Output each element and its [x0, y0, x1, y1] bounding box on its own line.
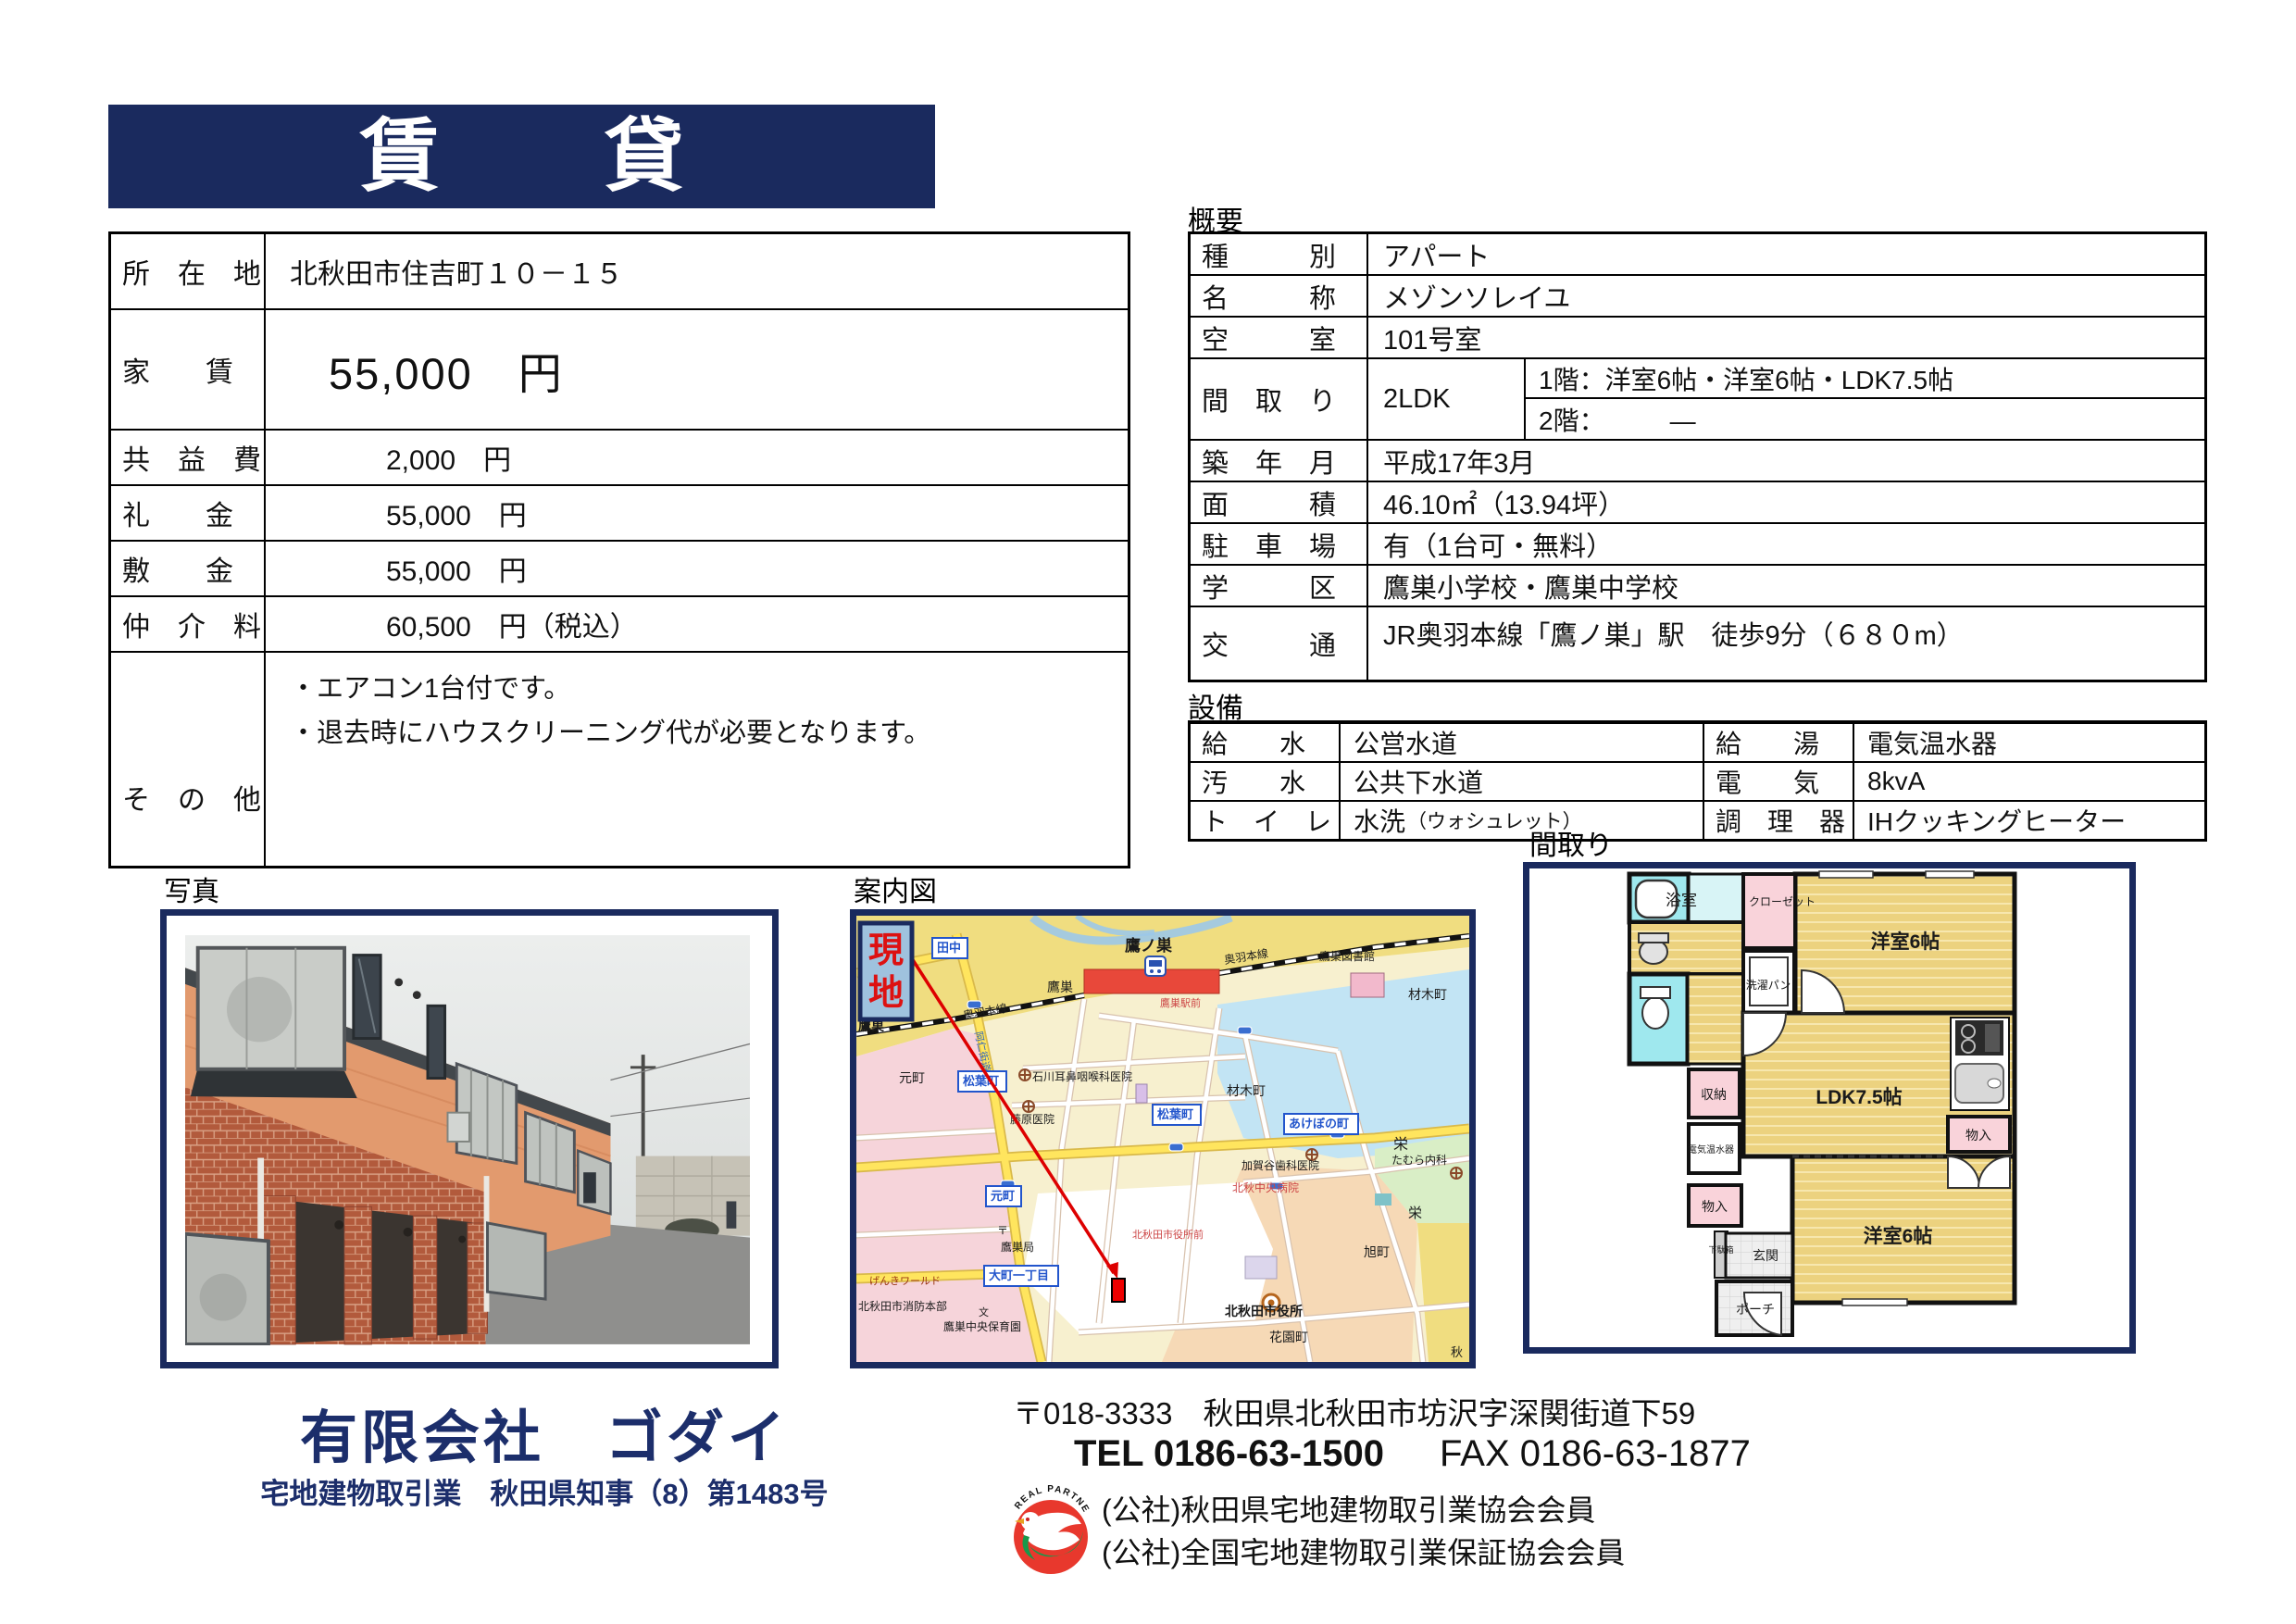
table-row-other: そ の 他 ・エアコン1台付です。 ・退去時にハウスクリーニング代が必要となりま… [111, 653, 1128, 866]
table-row-parking: 駐 車 場 有（1台可・無料） [1191, 524, 2204, 566]
row-label: 敷 金 [111, 542, 266, 595]
layout-floor2: 2階： ― [1526, 399, 2204, 439]
row-value: 2,000 円 [266, 431, 1128, 484]
row-value: ・エアコン1台付です。 ・退去時にハウスクリーニング代が必要となります。 [266, 653, 1128, 866]
area-map-image: 田中鷹ノ巣奥羽本線鷹巣図書館材木町鷹巣鷹巣駅前奥羽本線鷹巣阿仁街道元町松葉町石川… [856, 916, 1469, 1362]
svg-text:加賀谷歯科医院: 加賀谷歯科医院 [1242, 1159, 1319, 1172]
company-phone: TEL 0186-63-1500FAX 0186-63-1877 [1074, 1433, 1751, 1475]
svg-text:北秋田市消防本部: 北秋田市消防本部 [858, 1299, 947, 1313]
svg-text:洋室6帖: 洋室6帖 [1871, 931, 1940, 953]
svg-text:洗濯パン: 洗濯パン [1746, 979, 1791, 992]
svg-text:鷹巣駅前: 鷹巣駅前 [1160, 996, 1201, 1009]
svg-text:クローゼット: クローゼット [1749, 895, 1816, 908]
title-text: 賃 貸 [318, 117, 727, 196]
tel-number: TEL 0186-63-1500 [1074, 1433, 1384, 1474]
svg-text:北秋田市役所前: 北秋田市役所前 [1132, 1228, 1204, 1241]
row-value: 55,000 円 [266, 486, 1128, 540]
floorplan-image: 浴室クローゼット洋室6帖洗濯パンLDK7.5帖収納電気温水器物入物入下駄箱玄関ポ… [1529, 868, 2129, 1347]
svg-text:ポーチ: ポーチ [1736, 1302, 1775, 1317]
svg-text:げんきワールド: げんきワールド [869, 1275, 941, 1287]
membership-lines: (公社)秋田県宅地建物取引業協会会員 (公社)全国宅地建物取引業保証協会会員 [1102, 1489, 1625, 1575]
floorplan-section-label: 間取り [1529, 822, 1613, 863]
row-label: 共 益 費 [111, 431, 266, 484]
svg-text:鷹巣中央保育園: 鷹巣中央保育園 [943, 1319, 1021, 1333]
company-address: 〒018-3333 秋田県北秋田市坊沢字深関街道下59 [1013, 1389, 1695, 1433]
table-row-deposit: 敷 金 55,000 円 [111, 542, 1128, 597]
svg-text:材木町: 材木町 [1408, 987, 1447, 1002]
svg-text:旭町: 旭町 [1364, 1244, 1390, 1259]
row-label: そ の 他 [111, 653, 266, 866]
layout-floor1: 1階：洋室6帖・洋室6帖・LDK7.5帖 [1526, 359, 2204, 399]
table-row-built: 築 年 月 平成17年3月 [1191, 441, 2204, 482]
membership-line: (公社)秋田県宅地建物取引業協会会員 [1102, 1489, 1625, 1531]
svg-text:北秋中央病院: 北秋中央病院 [1232, 1181, 1299, 1194]
svg-text:〒: 〒 [997, 1224, 1008, 1237]
row-value: 60,500 円（税込） [266, 597, 1128, 651]
row-value: 55,000 円 [266, 310, 1128, 429]
svg-text:材木町: 材木町 [1227, 1083, 1266, 1098]
equipment-table: 給 水 公営水道 給 湯 電気温水器 汚 水 公共下水道 電 気 8kvA ト … [1188, 720, 2207, 842]
title-banner: 賃 貸 [108, 105, 935, 208]
svg-text:浴室: 浴室 [1666, 892, 1697, 909]
svg-text:現: 現 [868, 931, 904, 970]
table-row-key-money: 礼 金 55,000 円 [111, 486, 1128, 542]
dove-logo-icon: REAL PARTNER [1002, 1474, 1100, 1581]
building-photo-image [185, 934, 750, 1345]
realtor-logo: REAL PARTNER [1002, 1474, 1100, 1581]
note-line: ・退去時にハウスクリーニング代が必要となります。 [290, 712, 930, 756]
table-row-common-fee: 共 益 費 2,000 円 [111, 431, 1128, 486]
floorplan: 浴室クローゼット洋室6帖洗濯パンLDK7.5帖収納電気温水器物入物入下駄箱玄関ポ… [1523, 862, 2136, 1354]
svg-text:物入: 物入 [1702, 1199, 1728, 1214]
svg-text:田中: 田中 [937, 941, 961, 955]
svg-text:たむら内科: たむら内科 [1391, 1154, 1447, 1167]
table-row-type: 種 別 アパート [1191, 234, 2204, 276]
row-label: 仲 介 料 [111, 597, 266, 651]
row-label: 家 賃 [111, 310, 266, 429]
table-row-access: 交 通 JR奥羽本線「鷹ノ巣」駅 徒歩9分（６８０m） [1191, 607, 2204, 680]
svg-text:LDK7.5帖: LDK7.5帖 [1816, 1087, 1902, 1108]
svg-text:鷹ノ巣: 鷹ノ巣 [1125, 936, 1173, 955]
building-photo [160, 909, 779, 1368]
table-row-layout: 間 取 り 2LDK 1階：洋室6帖・洋室6帖・LDK7.5帖 2階： ― [1191, 359, 2204, 441]
equipment-row: ト イ レ 水洗（ウォシュレット） 調 理 器 IHクッキングヒーター [1191, 802, 2204, 839]
map-section-label: 案内図 [854, 868, 937, 909]
site-marker [1112, 1279, 1125, 1302]
svg-text:鷹巣: 鷹巣 [1047, 980, 1073, 994]
license-number: 宅地建物取引業 秋田県知事（8）第1483号 [220, 1470, 868, 1512]
svg-text:栄: 栄 [1393, 1136, 1408, 1153]
fax-number: FAX 0186-63-1877 [1440, 1433, 1751, 1474]
svg-text:石川耳鼻咽喉科医院: 石川耳鼻咽喉科医院 [1032, 1069, 1132, 1083]
svg-text:大町一丁目: 大町一丁目 [989, 1268, 1049, 1282]
svg-text:花園町: 花園町 [1269, 1330, 1308, 1344]
svg-text:下駄箱: 下駄箱 [1708, 1244, 1733, 1255]
svg-text:洋室6帖: 洋室6帖 [1864, 1225, 1933, 1247]
equipment-row: 汚 水 公共下水道 電 気 8kvA [1191, 763, 2204, 802]
overview-table: 種 別 アパート 名 称 メゾンソレイユ 空 室 101号室 間 取 り 2LD… [1188, 231, 2207, 682]
row-value: 55,000 円 [266, 542, 1128, 595]
svg-text:地: 地 [868, 974, 904, 1013]
row-label: 礼 金 [111, 486, 266, 540]
table-row-vacancy: 空 室 101号室 [1191, 318, 2204, 359]
svg-text:鷹巣局: 鷹巣局 [1001, 1240, 1034, 1254]
svg-text:電気温水器: 電気温水器 [1688, 1143, 1734, 1156]
svg-text:物入: 物入 [1965, 1128, 1991, 1143]
svg-text:収納: 収納 [1701, 1087, 1727, 1102]
svg-text:松葉町: 松葉町 [1157, 1107, 1193, 1121]
price-table: 所 在 地 北秋田市住吉町１０－１５ 家 賃 55,000 円 共 益 費 2,… [108, 231, 1130, 868]
svg-text:秋: 秋 [1451, 1345, 1463, 1359]
svg-text:栄: 栄 [1408, 1206, 1422, 1221]
photo-section-label: 写真 [164, 868, 219, 909]
table-row-location: 所 在 地 北秋田市住吉町１０－１５ [111, 234, 1128, 310]
svg-text:鷹巣図書館: 鷹巣図書館 [1319, 949, 1375, 963]
equipment-row: 給 水 公営水道 給 湯 電気温水器 [1191, 724, 2204, 763]
rental-flyer: 賃 貸 所 在 地 北秋田市住吉町１０－１５ 家 賃 55,000 円 共 益 … [0, 0, 2296, 1624]
svg-text:文: 文 [979, 1305, 989, 1318]
table-row-agency-fee: 仲 介 料 60,500 円（税込） [111, 597, 1128, 653]
svg-text:玄関: 玄関 [1753, 1248, 1778, 1263]
row-value: 北秋田市住吉町１０－１５ [266, 234, 1128, 308]
note-line: ・エアコン1台付です。 [290, 668, 570, 712]
svg-text:北秋田市役所: 北秋田市役所 [1225, 1304, 1303, 1318]
company-name: 有限会社 ゴダイ [220, 1391, 868, 1474]
membership-line: (公社)全国宅地建物取引業保証協会会員 [1102, 1531, 1625, 1574]
row-label: 所 在 地 [111, 234, 266, 308]
svg-text:元町: 元町 [991, 1189, 1015, 1203]
table-row-area: 面 積 46.10㎡（13.94坪） [1191, 482, 2204, 524]
svg-text:元町: 元町 [899, 1070, 925, 1085]
table-row-rent: 家 賃 55,000 円 [111, 310, 1128, 431]
table-row-school: 学 区 鷹巣小学校・鷹巣中学校 [1191, 566, 2204, 607]
area-map: 田中鷹ノ巣奥羽本線鷹巣図書館材木町鷹巣鷹巣駅前奥羽本線鷹巣阿仁街道元町松葉町石川… [850, 909, 1476, 1368]
table-row-name: 名 称 メゾンソレイユ [1191, 276, 2204, 318]
svg-text:あけぼの町: あけぼの町 [1289, 1117, 1349, 1131]
